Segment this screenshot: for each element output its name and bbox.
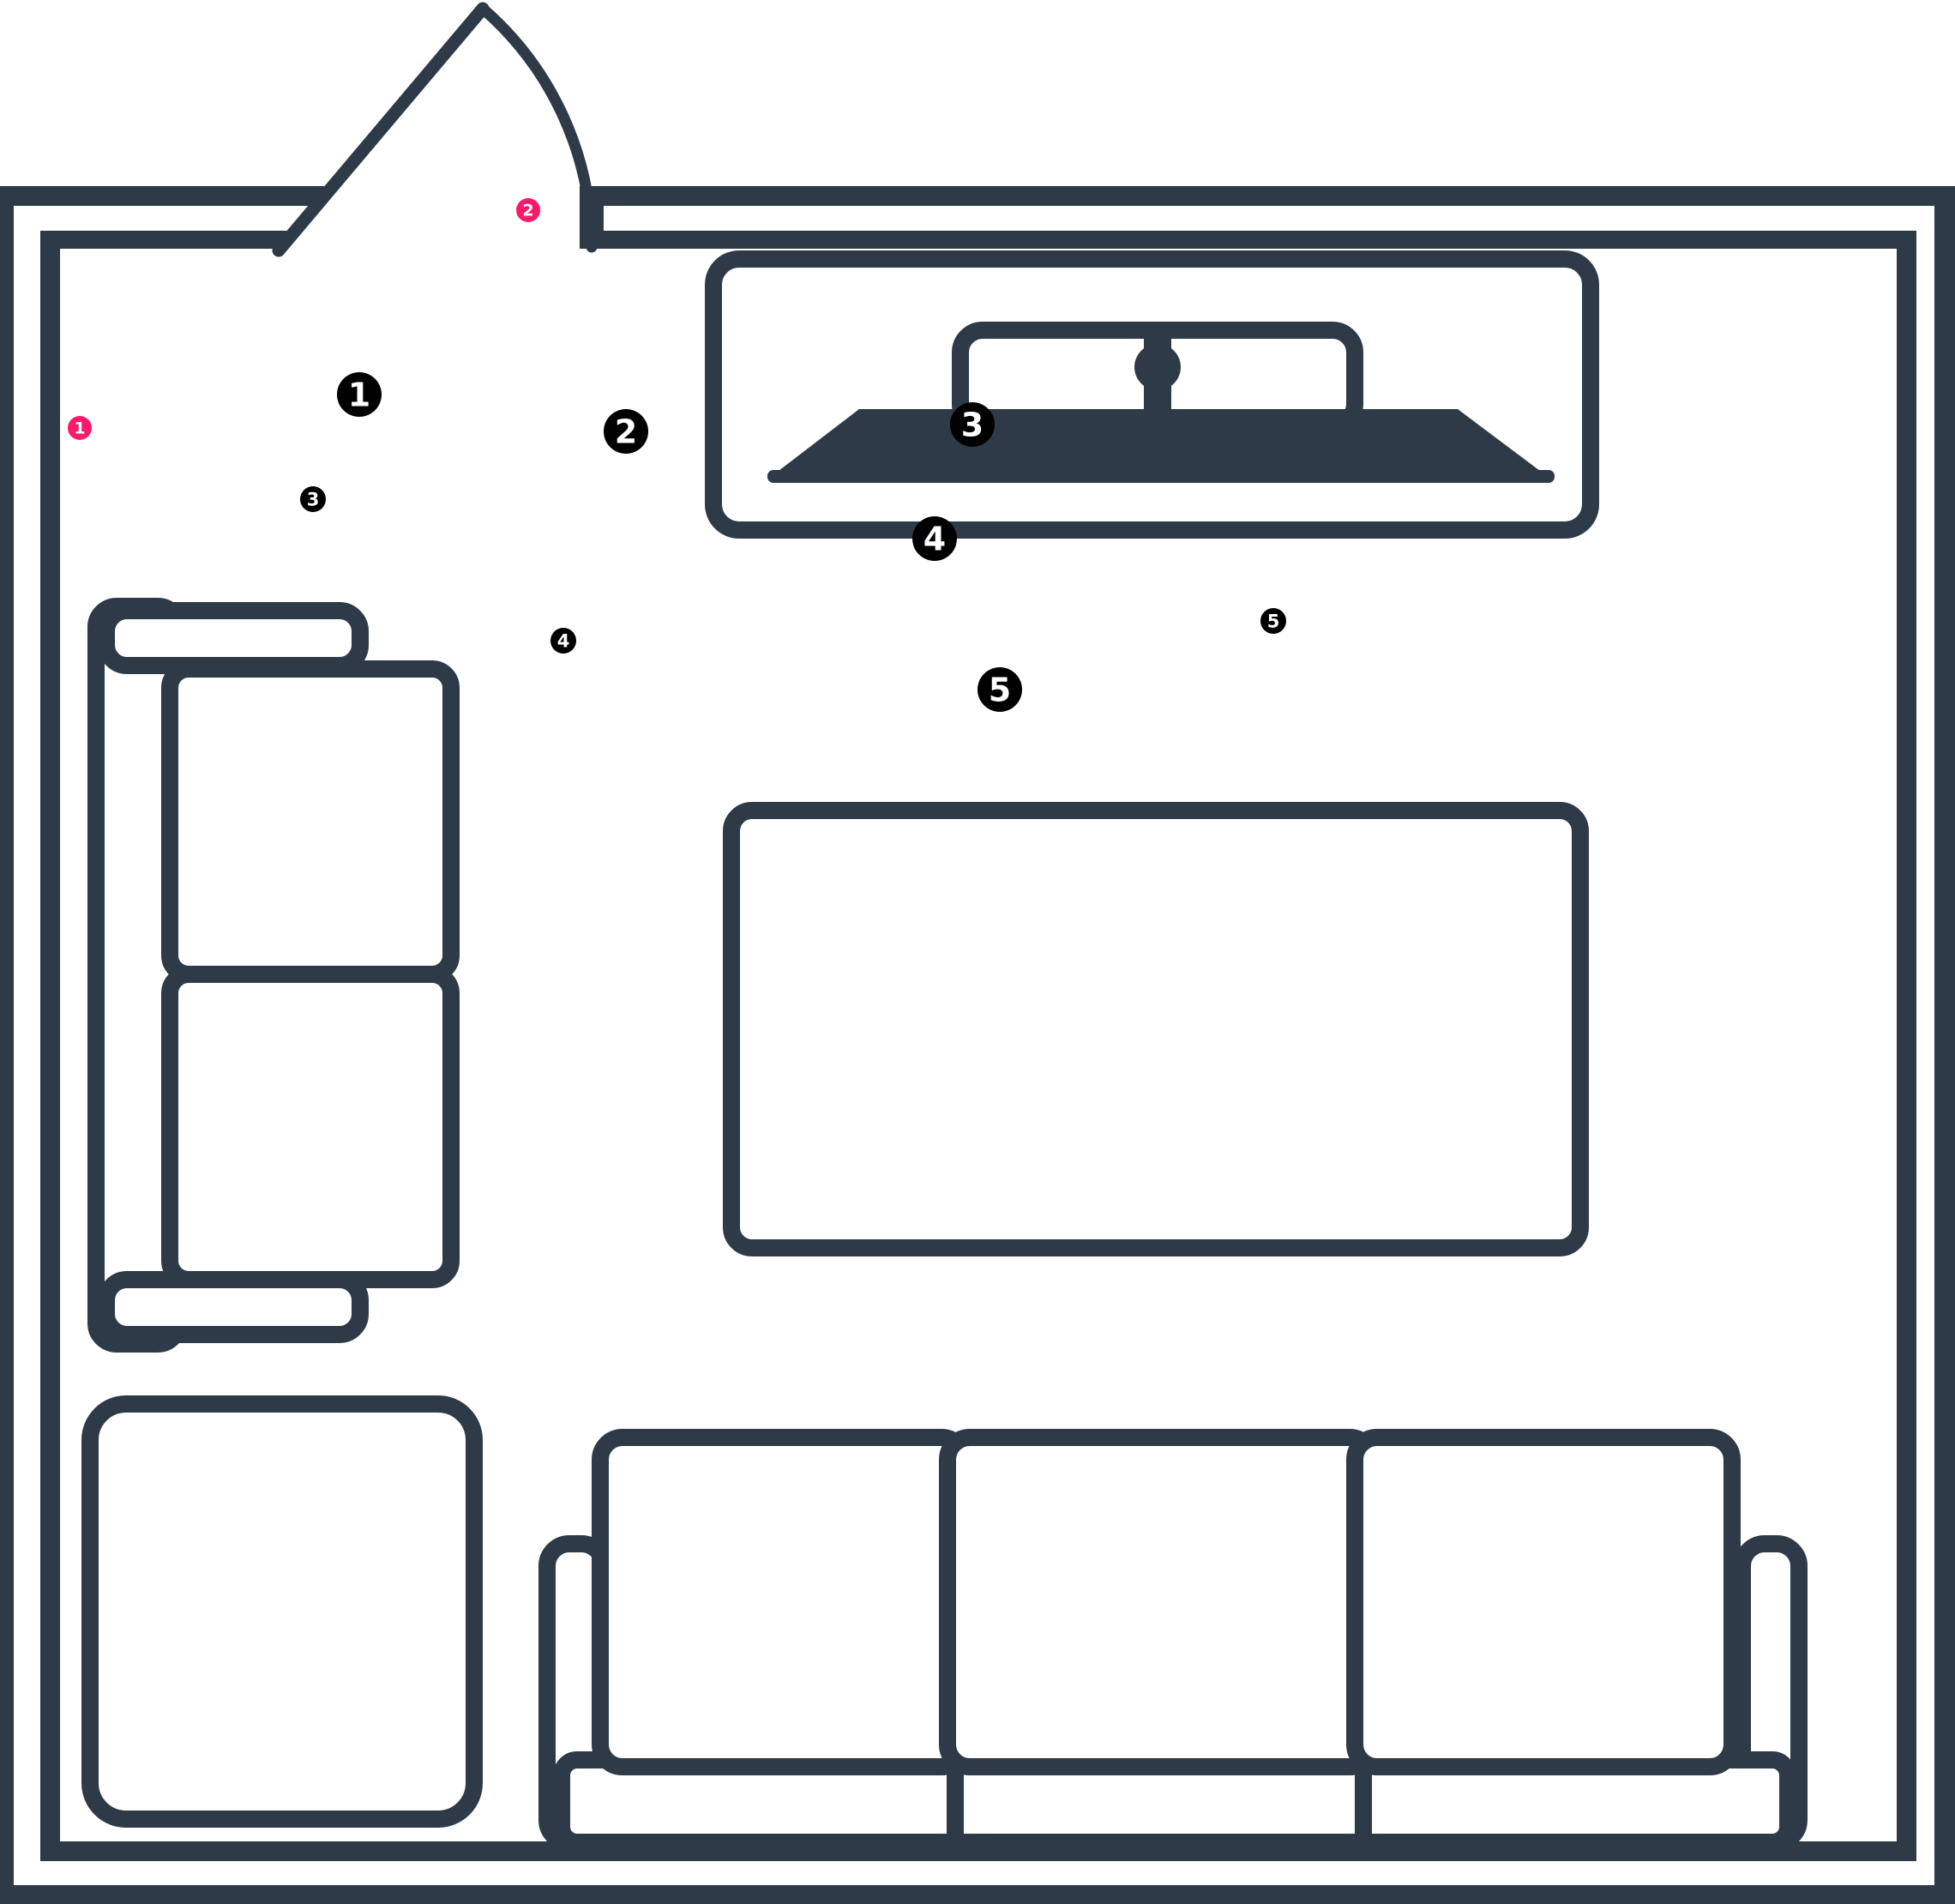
marker-label: 2 bbox=[615, 413, 637, 450]
marker-label: 2 bbox=[522, 202, 533, 220]
inner-wall-top-left bbox=[60, 231, 295, 249]
marker-label: 5 bbox=[989, 671, 1011, 708]
loveseat-icon[interactable] bbox=[96, 606, 451, 1344]
sofa-cushion-3 bbox=[1355, 1437, 1732, 1767]
loveseat-cushion-top bbox=[170, 669, 451, 974]
marker-pink-1[interactable]: 1 bbox=[68, 416, 92, 440]
marker-label: 3 bbox=[961, 406, 984, 443]
marker-large-4[interactable]: 4 bbox=[912, 516, 957, 561]
sofa-cushion-1 bbox=[600, 1437, 964, 1767]
inner-wall-top-right bbox=[604, 231, 1916, 249]
marker-small-4[interactable]: 4 bbox=[550, 628, 576, 654]
square-side-table-top bbox=[90, 1404, 474, 1819]
outer-wall-right bbox=[1934, 186, 1955, 1904]
outer-wall-top-left bbox=[0, 186, 332, 206]
sofa-cushion-2 bbox=[947, 1437, 1372, 1767]
marker-pink-2[interactable]: 2 bbox=[516, 198, 540, 222]
inner-wall-right bbox=[1897, 231, 1916, 1841]
floor-plan-canvas: 1234534512 bbox=[0, 0, 1955, 1904]
three-seat-sofa-icon[interactable] bbox=[547, 1437, 1799, 1842]
marker-small-3[interactable]: 3 bbox=[300, 486, 326, 512]
outer-wall-bottom bbox=[0, 1885, 1955, 1904]
loveseat-cushion-bottom bbox=[170, 974, 451, 1280]
marker-large-3[interactable]: 3 bbox=[950, 402, 995, 447]
outer-wall-top-right bbox=[580, 186, 1955, 206]
coffee-table-icon[interactable] bbox=[731, 810, 1580, 1248]
marker-large-2[interactable]: 2 bbox=[604, 409, 648, 454]
marker-label: 3 bbox=[307, 489, 320, 509]
tv-base-bar bbox=[767, 470, 1555, 483]
tv-console-icon[interactable] bbox=[713, 259, 1591, 530]
marker-large-5[interactable]: 5 bbox=[977, 667, 1022, 712]
marker-label: 4 bbox=[923, 520, 946, 557]
entry-door-icon[interactable] bbox=[279, 9, 592, 250]
coffee-table-top bbox=[731, 810, 1580, 1248]
marker-large-1[interactable]: 1 bbox=[337, 372, 382, 417]
marker-label: 4 bbox=[557, 630, 570, 651]
inner-wall-left bbox=[40, 231, 60, 1841]
door-leaf bbox=[279, 9, 483, 250]
loveseat-arm-top bbox=[106, 611, 360, 666]
tv-mount-knob bbox=[1134, 344, 1181, 390]
marker-label: 1 bbox=[348, 376, 370, 413]
marker-label: 1 bbox=[74, 419, 85, 438]
marker-label: 5 bbox=[1267, 611, 1280, 631]
outer-wall-left bbox=[0, 186, 14, 1904]
square-side-table-icon[interactable] bbox=[90, 1404, 474, 1819]
tv-screen bbox=[779, 409, 1540, 471]
marker-small-5[interactable]: 5 bbox=[1260, 608, 1286, 634]
